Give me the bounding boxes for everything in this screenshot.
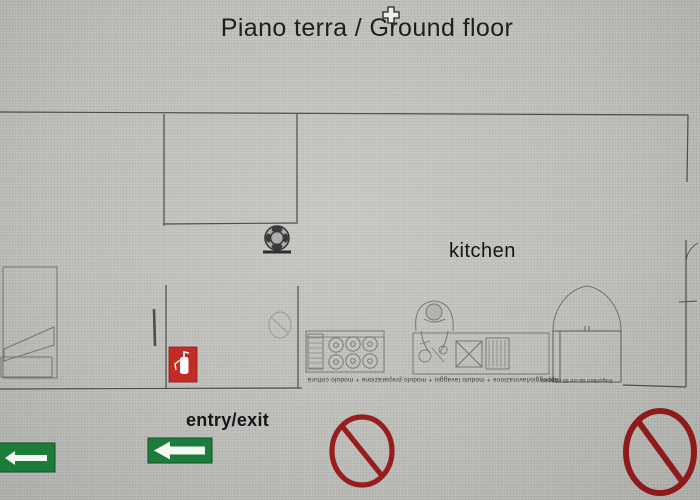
boiler-icon xyxy=(263,226,291,252)
move-cursor-icon xyxy=(383,7,399,23)
stove-unit xyxy=(306,331,384,372)
fridge-caption-upside-down: Frigorifero da cm 90 (doppio) xyxy=(550,377,612,383)
fire-extinguisher-icon xyxy=(169,347,197,382)
floor-plan-drawing xyxy=(0,0,700,500)
exit-arrow-sign-icon xyxy=(148,438,212,463)
kitchen-room-label: kitchen xyxy=(449,240,516,263)
entry-exit-label: entry/exit xyxy=(186,410,269,431)
counter-caption-upside-down: appoggio/lavorazione + modulo lavaggio +… xyxy=(306,376,560,383)
faint-symbol xyxy=(269,312,291,338)
floor-plan-photo: Piano terra / Ground floor xyxy=(0,0,700,500)
no-entry-icon xyxy=(332,417,392,485)
exit-arrow-sign-icon xyxy=(0,443,55,472)
person-figure xyxy=(416,301,454,353)
fridge xyxy=(553,286,621,382)
left-room-furniture xyxy=(1,267,57,378)
sink-unit xyxy=(413,333,549,374)
no-entry-icon xyxy=(626,411,694,493)
walls xyxy=(0,112,698,389)
